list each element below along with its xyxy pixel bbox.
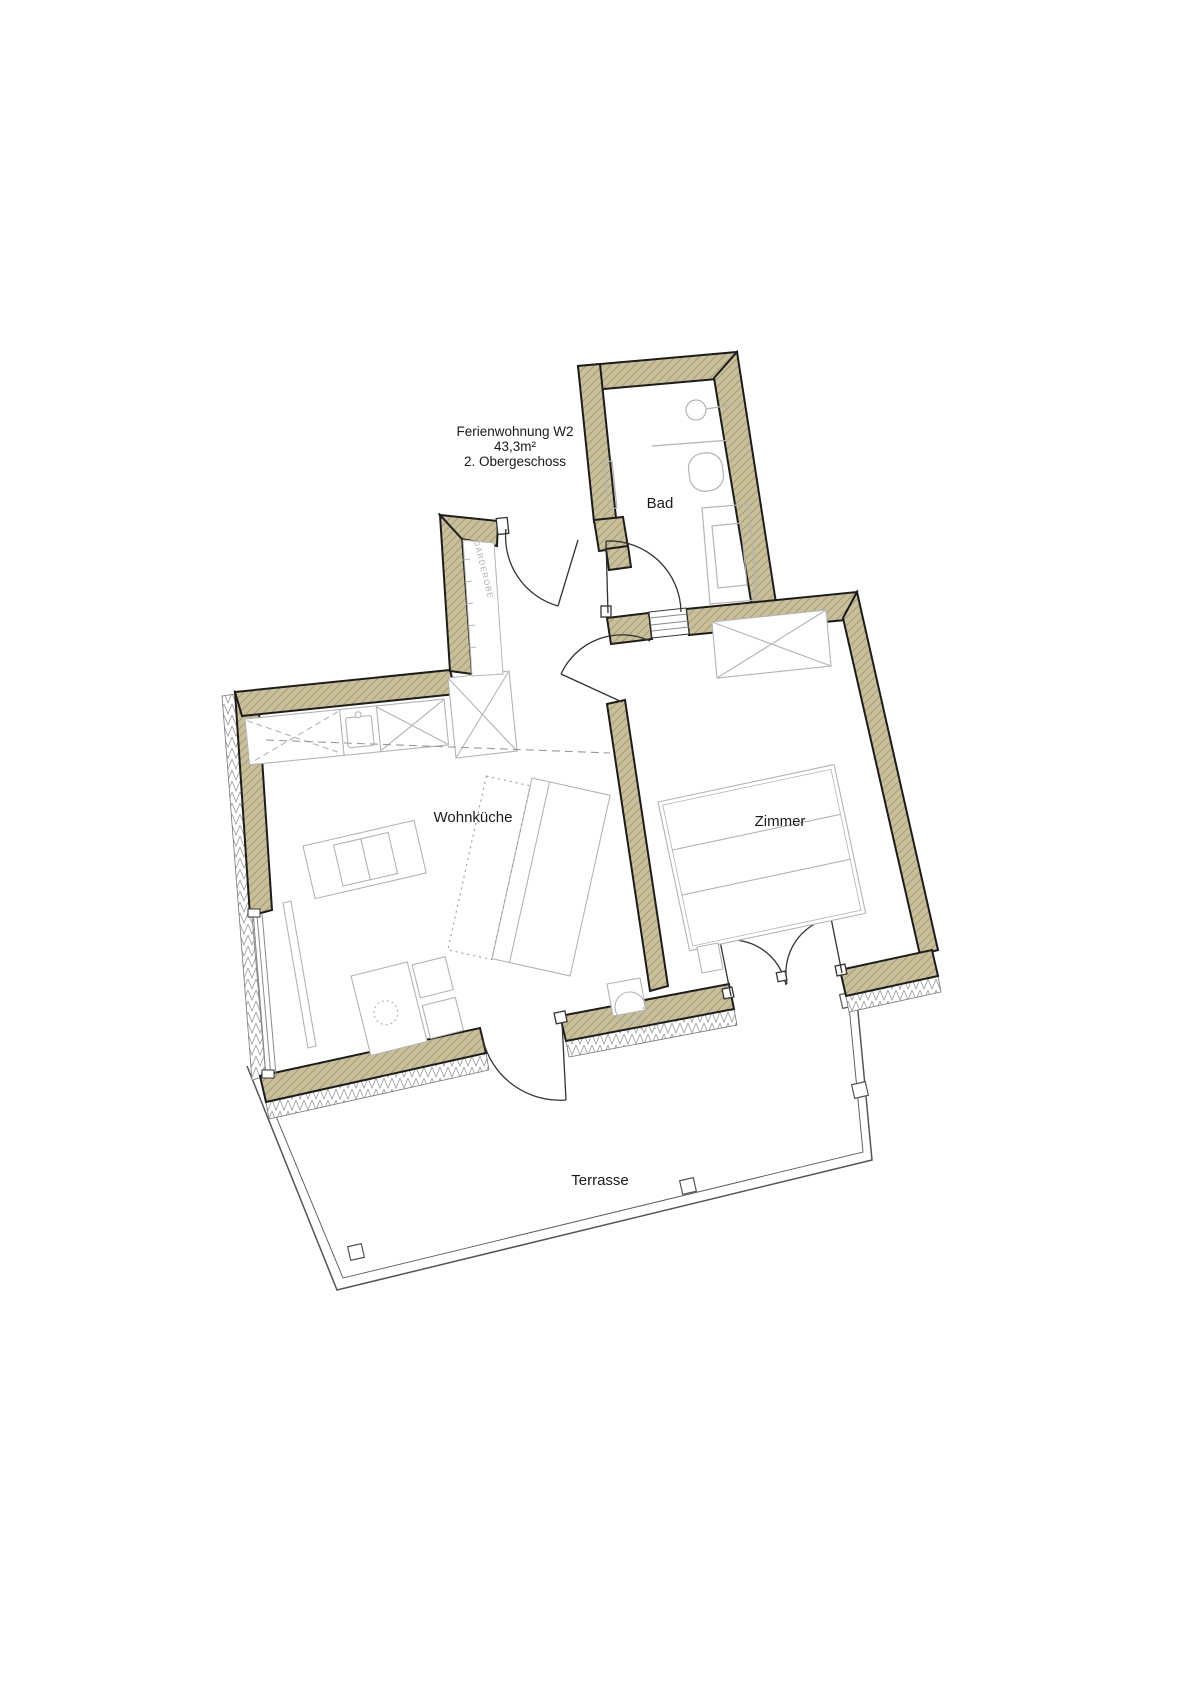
terrace xyxy=(247,980,872,1290)
french-door-meeting-post xyxy=(776,971,787,982)
double-bed xyxy=(658,765,866,951)
kitchen-faucet xyxy=(355,711,362,718)
zimmer-furniture xyxy=(658,610,866,973)
window-corridor-zimmer xyxy=(649,608,689,638)
bedside-table xyxy=(697,943,723,973)
plan-title: Ferienwohnung W2 xyxy=(456,424,573,439)
terrace-door-wohnkueche xyxy=(483,1011,567,1100)
floorplan-sheet: Ferienwohnung W2 43,3m² 2. Obergeschoss … xyxy=(0,0,1204,1704)
wardrobe xyxy=(712,610,831,678)
plan-area: 43,3m² xyxy=(494,439,537,454)
sideboard xyxy=(283,901,316,1048)
bad-mirror-line xyxy=(652,440,731,446)
entry-door-frame xyxy=(496,517,509,534)
plan-floor: 2. Obergeschoss xyxy=(464,454,566,469)
tall-cabinet xyxy=(448,671,517,758)
wall-bad-left-foot2 xyxy=(606,546,631,570)
room-label-zimmer: Zimmer xyxy=(755,813,806,830)
floorplan-drawing: Ferienwohnung W2 43,3m² 2. Obergeschoss … xyxy=(0,0,1204,1704)
sofa-bed xyxy=(448,768,610,977)
room-label-bad: Bad xyxy=(647,495,674,512)
terrace-door-arc xyxy=(483,1040,566,1100)
terrace-post xyxy=(852,1082,869,1099)
wall-divider-wohnkueche-zimmer xyxy=(607,700,668,991)
entry-door-leaf xyxy=(558,540,578,606)
zimmer-door xyxy=(561,635,650,702)
room-label-wohnkueche: Wohnküche xyxy=(434,809,513,826)
bad-door-frame xyxy=(601,606,611,617)
terrace-door-frame xyxy=(554,1011,567,1024)
armchair xyxy=(303,820,426,898)
bad-shower-tray xyxy=(712,523,747,588)
bad-sink xyxy=(686,400,706,420)
terrace-post xyxy=(680,1178,697,1195)
zimmer-door-leaf xyxy=(561,674,622,702)
terrace-railing-outer xyxy=(247,980,872,1290)
entry-door-arc xyxy=(506,529,558,606)
french-door-frame-left xyxy=(722,987,734,999)
chair xyxy=(412,957,453,998)
entry-door xyxy=(496,517,578,606)
bad-toilet xyxy=(687,451,726,493)
french-door-arc-left xyxy=(720,940,786,985)
side-table xyxy=(607,978,646,1016)
french-door-leaf-right xyxy=(831,918,842,973)
chair xyxy=(422,997,463,1038)
terrace-railing-inner xyxy=(256,985,863,1278)
terrace-post xyxy=(348,1244,365,1261)
room-label-terrasse: Terrasse xyxy=(571,1172,629,1189)
